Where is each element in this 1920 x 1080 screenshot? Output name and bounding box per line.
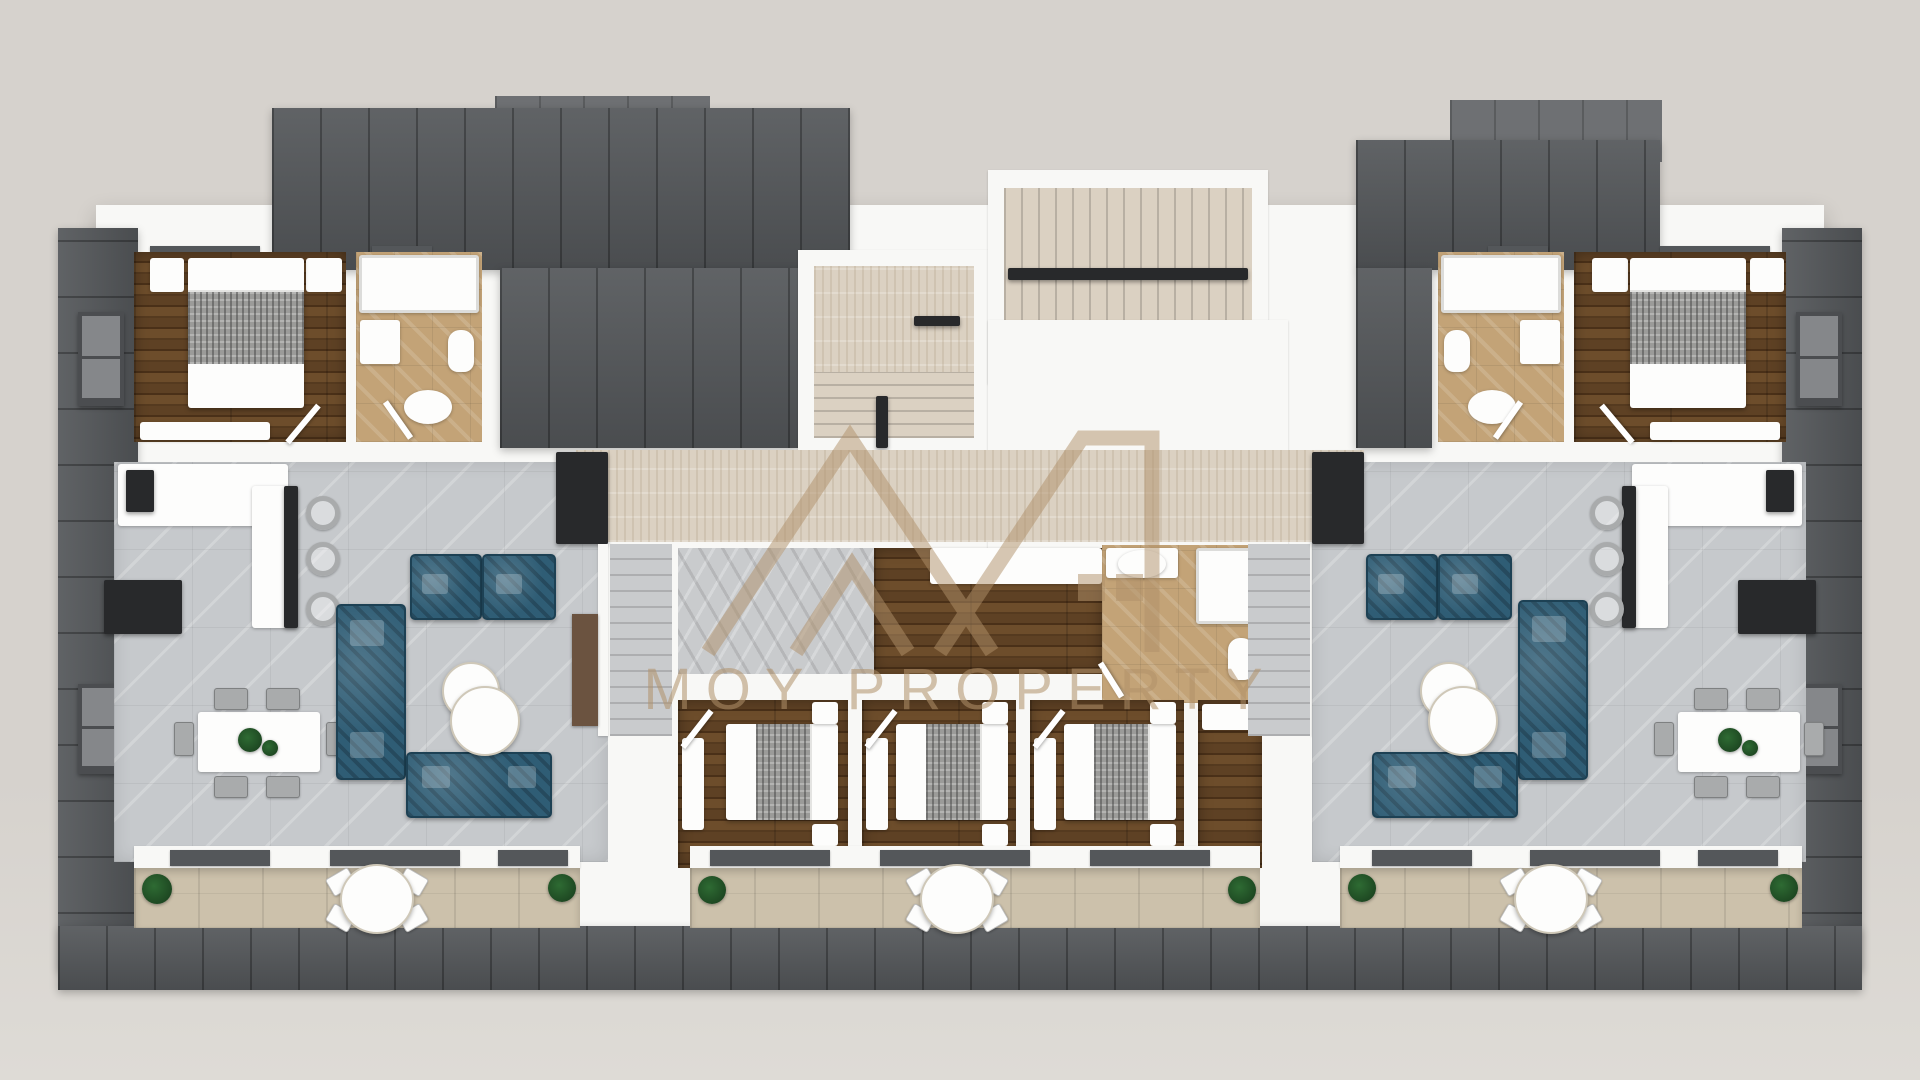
outdoor-table	[340, 864, 414, 934]
balcony-plant	[1228, 876, 1256, 904]
nightstand	[812, 824, 838, 846]
coffee-table	[1428, 686, 1498, 756]
dining-chair	[214, 776, 248, 798]
table-plant	[262, 740, 278, 756]
bed-linen	[1630, 258, 1746, 408]
kitchen-cooktop	[1766, 470, 1794, 512]
bar-stool	[1590, 542, 1624, 576]
shower-tray	[359, 255, 479, 313]
sofa	[1518, 600, 1588, 780]
dining-chair	[1746, 776, 1780, 798]
bed-linen	[188, 258, 304, 408]
duplex-stairs-right	[1248, 544, 1310, 736]
tall-cabinet	[1312, 452, 1364, 544]
washing-machine	[360, 320, 400, 364]
tv-console	[572, 614, 598, 726]
bedroom-bench	[140, 422, 270, 440]
island-countertop	[1622, 486, 1636, 628]
window-sill	[498, 850, 568, 866]
bed-pillows	[1630, 258, 1746, 292]
double-bed	[188, 258, 304, 408]
bar-stool	[306, 542, 340, 576]
island-countertop	[284, 486, 298, 628]
bed-blanket	[1094, 724, 1148, 820]
stair-wall	[598, 544, 608, 736]
bar-stool	[306, 496, 340, 530]
sofa	[1372, 752, 1518, 818]
armchair	[482, 554, 556, 620]
dining-chair	[266, 776, 300, 798]
bed-pillows	[980, 724, 1008, 820]
window-sill	[170, 850, 270, 866]
double-bed	[726, 724, 838, 820]
window-sill	[1372, 850, 1472, 866]
stair-handrail	[914, 316, 960, 326]
double-bed	[896, 724, 1008, 820]
dining-chair	[1654, 722, 1674, 756]
stairwell-left-steps	[814, 372, 974, 438]
bed-pillows	[188, 258, 304, 292]
kitchen-block	[104, 580, 182, 634]
kitchen-block	[1738, 580, 1816, 634]
outdoor-table	[920, 864, 994, 934]
armchair	[1438, 554, 1512, 620]
duplex-stairs-left	[610, 544, 672, 736]
shower-tray	[1441, 255, 1561, 313]
window-pane	[1800, 359, 1838, 399]
outdoor-table	[1514, 864, 1588, 934]
table-plant	[1742, 740, 1758, 756]
hall-cabinet	[930, 548, 1102, 584]
nightstand	[1750, 258, 1784, 292]
central-stairs	[678, 548, 874, 674]
stair-handrail	[1008, 268, 1248, 280]
roof-slope-inner-left	[500, 268, 800, 448]
balcony-plant	[1348, 874, 1376, 902]
bed-blanket	[188, 292, 304, 364]
bed-blanket	[1630, 292, 1746, 364]
wardrobe	[1034, 738, 1056, 830]
kitchen-cooktop	[126, 470, 154, 512]
window-pane	[1800, 316, 1838, 356]
bar-stool	[1590, 592, 1624, 626]
double-bed	[1064, 724, 1176, 820]
sink	[1118, 550, 1166, 578]
roof-slope-inner-right	[1356, 268, 1432, 448]
roof-window-left-top	[78, 312, 124, 406]
toilet	[448, 330, 474, 372]
balcony-plant	[142, 874, 172, 904]
bar-stool	[306, 592, 340, 626]
washing-machine	[1520, 320, 1560, 364]
bed-pillows	[1148, 724, 1176, 820]
nightstand	[982, 702, 1008, 724]
armchair	[410, 554, 482, 620]
window-sill	[710, 850, 830, 866]
tall-cabinet	[556, 452, 608, 544]
toilet	[1444, 330, 1470, 372]
dining-chair	[214, 688, 248, 710]
roof-edge-bottom	[58, 926, 1862, 990]
bed-sheet	[1064, 724, 1094, 820]
nightstand	[1150, 824, 1176, 846]
dining-chair	[1804, 722, 1824, 756]
bed-sheet	[188, 364, 304, 408]
hallway-floor	[576, 450, 1364, 542]
sofa	[406, 752, 552, 818]
double-bed	[1630, 258, 1746, 408]
floorplan-render: MOY PROPERTY	[0, 0, 1920, 1080]
dining-chair	[266, 688, 300, 710]
balcony-plant	[698, 876, 726, 904]
dining-chair	[1746, 688, 1780, 710]
window-sill	[1698, 850, 1778, 866]
dining-chair	[1694, 776, 1728, 798]
bed-sheet	[726, 724, 756, 820]
bar-stool	[1590, 496, 1624, 530]
dining-chair	[174, 722, 194, 756]
dining-chair	[1694, 688, 1728, 710]
window-pane	[82, 316, 120, 356]
coffee-table	[450, 686, 520, 756]
bed-sheet	[896, 724, 926, 820]
bed-pillows	[810, 724, 838, 820]
bed-blanket	[926, 724, 980, 820]
balcony-plant	[548, 874, 576, 902]
nightstand	[306, 258, 342, 292]
window-pane	[82, 359, 120, 399]
roof-block-top-left	[272, 108, 850, 270]
roof-window-right-top	[1796, 312, 1842, 406]
nightstand	[1150, 702, 1176, 724]
window-sill	[330, 850, 460, 866]
bed-sheet	[1630, 364, 1746, 408]
sink	[404, 390, 452, 424]
armchair	[1366, 554, 1438, 620]
table-plant	[1718, 728, 1742, 752]
nightstand	[150, 258, 184, 292]
nightstand	[812, 702, 838, 724]
nightstand	[1592, 258, 1628, 292]
table-plant	[238, 728, 262, 752]
bedroom-bench	[1650, 422, 1780, 440]
balcony-plant	[1770, 874, 1798, 902]
window-sill	[1090, 850, 1210, 866]
stair-handrail	[876, 396, 888, 448]
wardrobe	[866, 738, 888, 830]
wardrobe	[682, 738, 704, 830]
bed-blanket	[756, 724, 810, 820]
sofa	[336, 604, 406, 780]
nightstand	[982, 824, 1008, 846]
